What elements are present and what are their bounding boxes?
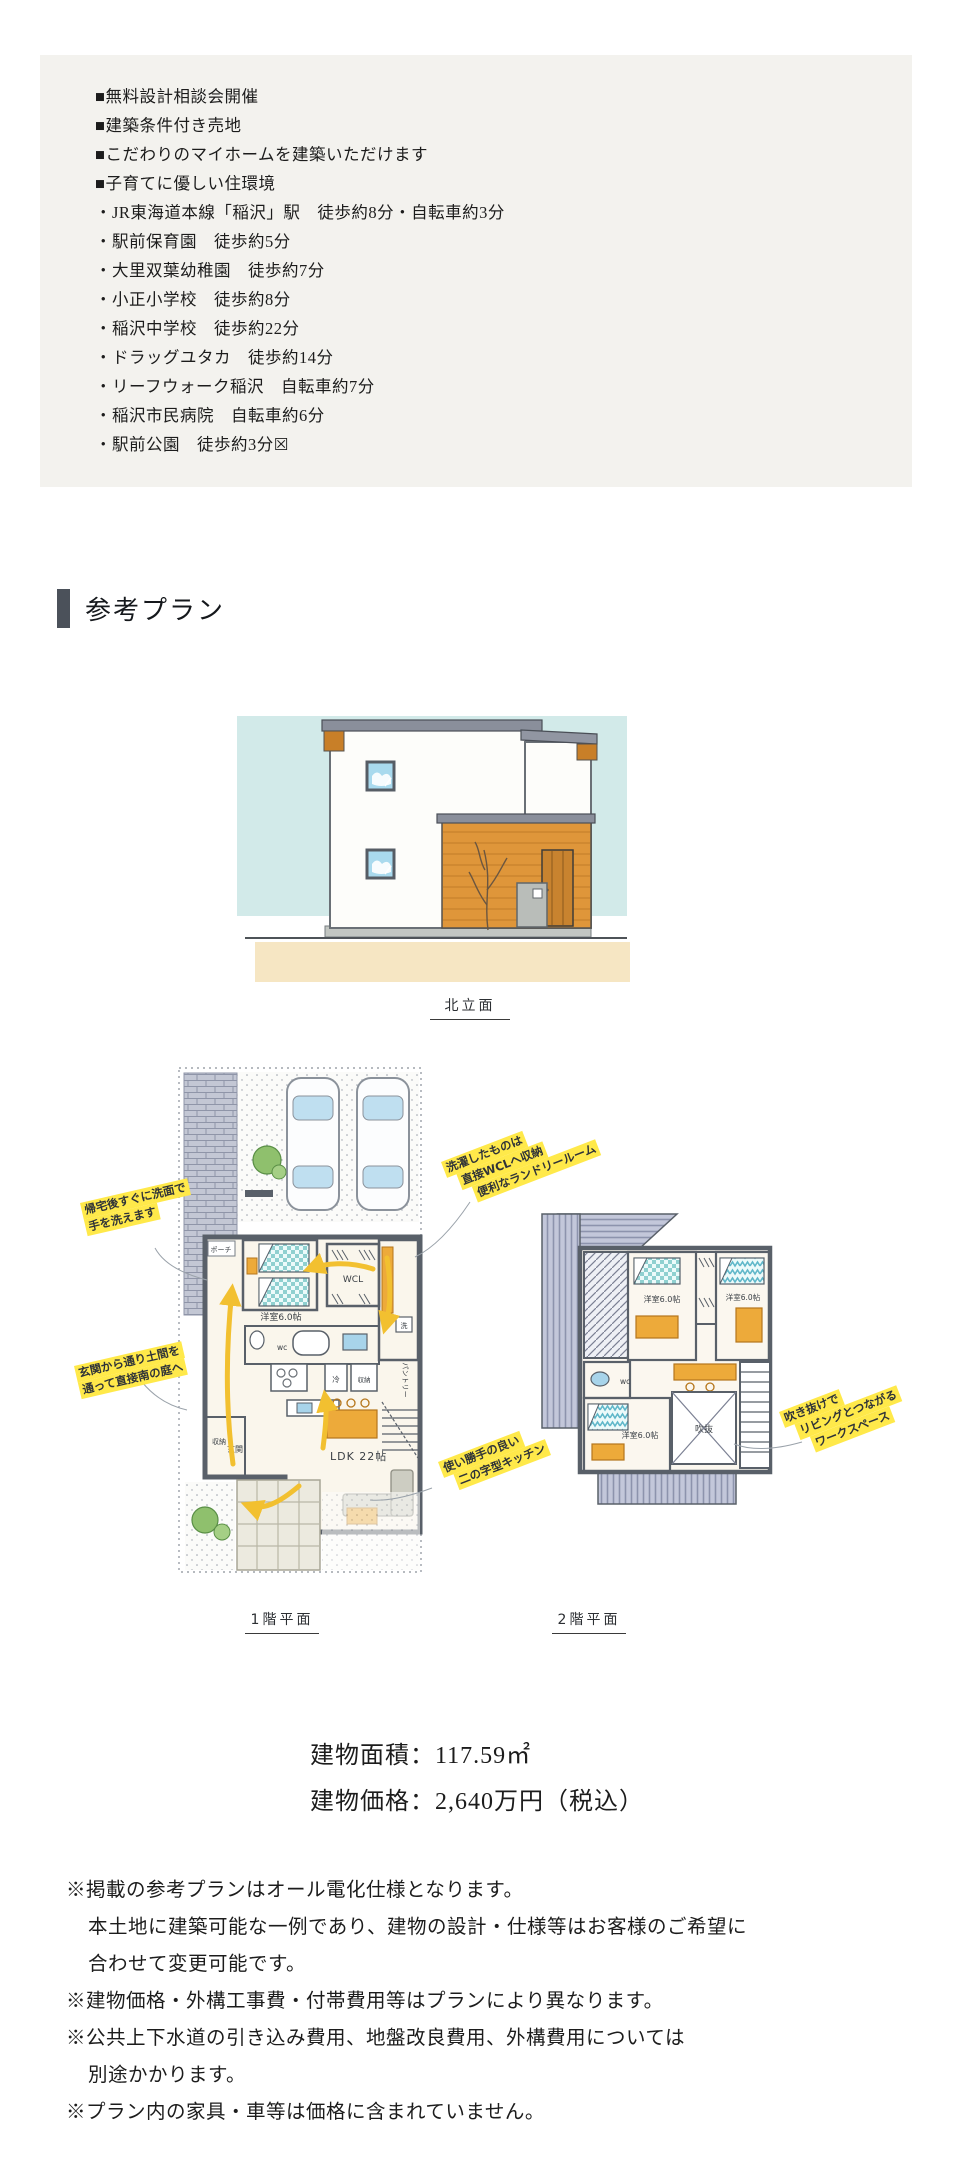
room-label: 収納 — [358, 1375, 371, 1384]
property-info-box: ■無料設計相談会開催 ■建築条件付き売地 ■こだわりのマイホームを建築いただけま… — [40, 55, 912, 487]
svg-text:ポーチ: ポーチ — [211, 1246, 232, 1254]
section-accent-bar — [57, 589, 70, 628]
bush — [272, 1165, 286, 1179]
floor1-caption: 1階平面 — [245, 1609, 319, 1634]
feature-item: ■子育てに優しい住環境 — [95, 169, 882, 198]
car — [357, 1078, 409, 1210]
notes: ※掲載の参考プランはオール電化仕様となります。 本土地に建築可能な一例であり、建… — [66, 1872, 826, 2131]
access-item: ・JR東海道本線「稲沢」駅 徒歩約8分・自転車約3分 — [95, 198, 882, 227]
note-line: ※公共上下水道の引き込み費用、地盤改良費用、外構費用については — [66, 2020, 826, 2057]
workspace-desk-2f — [674, 1364, 736, 1380]
feature-item: ■無料設計相談会開催 — [95, 82, 882, 111]
access-item: ・駅前保育園 徒歩約5分 — [95, 227, 882, 256]
window — [367, 762, 394, 790]
annotation-workspace: 吹き抜けで リビングとつながる ワークスペース — [779, 1369, 908, 1459]
patio-1f — [237, 1480, 320, 1570]
stairs-2f — [740, 1362, 770, 1468]
room-label: 洋室6.0帖 — [622, 1430, 659, 1440]
room-label: 洋室6.0帖 — [726, 1292, 761, 1302]
annotation-laundry: 洗濯したものは 直接WCLへ収納 便利なランドリールーム — [441, 1107, 601, 1209]
room-label: 洋室6.0帖 — [644, 1294, 681, 1304]
note-line: ※掲載の参考プランはオール電化仕様となります。 — [66, 1872, 826, 1909]
access-item: ・稲沢市民病院 自転車約6分 — [95, 401, 882, 430]
page: ■無料設計相談会開催 ■建築条件付き売地 ■こだわりのマイホームを建築いただけま… — [0, 0, 954, 2184]
roof-left-2f — [542, 1214, 580, 1428]
window — [367, 850, 394, 878]
terrace-1f — [322, 1492, 420, 1570]
note-line: 別途かかります。 — [66, 2057, 826, 2094]
main-roof — [322, 720, 542, 731]
annotation-doma: 玄関から通り土間を 通って直接南の庭へ — [74, 1341, 188, 1399]
section-title: 参考プラン — [85, 590, 225, 627]
room-label: wc — [620, 1377, 630, 1386]
building-area: 建物面積：117.59㎡ — [310, 1733, 644, 1779]
building-info: 建物面積：117.59㎡ 建物価格：2,640万円（税込） — [310, 1733, 644, 1825]
note-line: 本土地に建築可能な一例であり、建物の設計・仕様等はお客様のご希望に — [66, 1909, 826, 1946]
mid-roof — [437, 814, 595, 823]
access-item: ・駅前公園 徒歩約3分☒ — [95, 430, 882, 459]
feature-item: ■こだわりのマイホームを建築いただけます — [95, 140, 882, 169]
balcony-2f — [598, 1472, 736, 1504]
floor2-caption: 2階平面 — [552, 1609, 626, 1634]
building-price: 建物価格：2,640万円（税込） — [310, 1779, 644, 1825]
svg-text:パントリー: パントリー — [401, 1362, 409, 1397]
room-label: LDK 22帖 — [330, 1450, 387, 1463]
garden-1f — [185, 1482, 235, 1570]
feature-item: ■建築条件付き売地 — [95, 111, 882, 140]
note-line: ※建物価格・外構工事費・付帯費用等はプランにより異なります。 — [66, 1983, 826, 2020]
room-label: 吹抜 — [695, 1423, 713, 1435]
section-header: 参考プラン — [57, 589, 225, 628]
room-label: wc — [277, 1343, 287, 1352]
svg-text:収納: 収納 — [212, 1437, 226, 1446]
access-item: ・ドラッグユタカ 徒歩約14分 — [95, 343, 882, 372]
note-line: 合わせて変更可能です。 — [66, 1946, 826, 1983]
elevation-caption: 北立面 — [430, 995, 510, 1020]
annotation-kitchen: 使い勝手の良い 二の字型キッチン — [438, 1423, 551, 1493]
drain-grate — [245, 1190, 273, 1197]
access-item: ・リーフウォーク稲沢 自転車約7分 — [95, 372, 882, 401]
room-label: WCL — [343, 1275, 363, 1285]
svg-text:洗: 洗 — [401, 1321, 408, 1330]
room-label: 冷 — [332, 1374, 340, 1384]
access-item: ・大里双葉幼稚園 徒歩約7分 — [95, 256, 882, 285]
stairwell-2f — [584, 1252, 628, 1358]
car — [287, 1078, 339, 1210]
access-item: ・稲沢中学校 徒歩約22分 — [95, 314, 882, 343]
ground-wash — [255, 942, 630, 982]
note-line: ※プラン内の家具・車等は価格に含まれていません。 — [66, 2094, 826, 2131]
elevation-drawing — [225, 700, 645, 990]
access-item: ・小正小学校 徒歩約8分 — [95, 285, 882, 314]
room-label: 洋室6.0帖 — [260, 1311, 301, 1323]
leader-lines — [0, 1050, 954, 1610]
floor-plan-1f: ポーチ 洋室6.0帖 WCL 洗 パントリー — [175, 1062, 425, 1577]
floor-plan-2f: 洋室6.0帖 洋室6.0帖 wc 洋室6.0帖 — [540, 1212, 775, 1512]
